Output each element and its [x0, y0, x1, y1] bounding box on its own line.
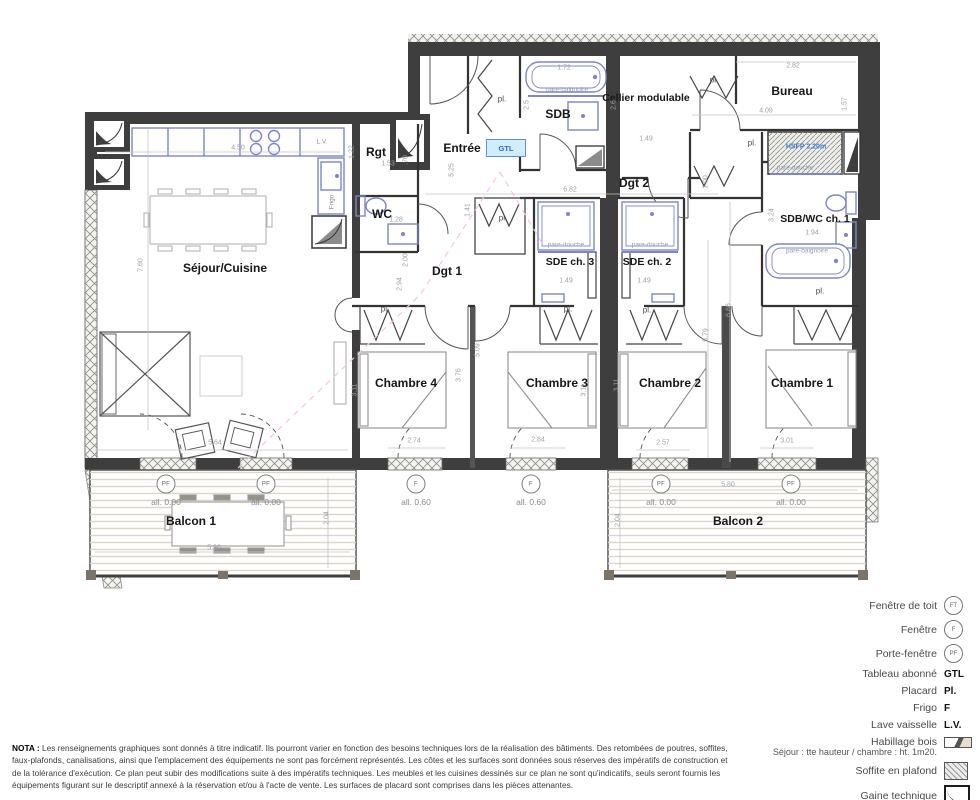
dim-dgt1-h2: 2.94 — [397, 277, 404, 291]
dim-sejour-h: 7.60 — [138, 258, 145, 272]
nota-disclaimer: NOTA : Les renseignements graphiques son… — [12, 742, 728, 792]
pl-symbol: Pl. — [944, 686, 956, 697]
placard-label: pl. — [499, 214, 507, 223]
placard-label: pl. — [710, 76, 718, 85]
nota-text: Les renseignements graphiques sont donné… — [12, 743, 728, 790]
dim-balcon1-h: 2.04 — [324, 511, 331, 525]
room-label-sejour: Séjour/Cuisine — [183, 261, 267, 275]
f-symbol: F — [529, 481, 533, 487]
legend-label: Gaine technique — [861, 790, 937, 800]
hsfp-label: HSFP 2.20m — [786, 144, 826, 151]
wood-swatch-icon — [944, 737, 972, 748]
legend-row-tableau-abonne: Tableau abonné GTL — [644, 668, 974, 680]
dim-ch3-side: 3.11 — [581, 383, 588, 396]
dim-entree-h: 5.25 — [449, 163, 456, 177]
pf-symbol: PF — [262, 481, 270, 487]
pare-baignoire-label: pare-baignoire — [546, 87, 588, 94]
balcony-door-swings — [140, 414, 816, 458]
porte-fenetre-marker: PF — [157, 475, 176, 494]
dim-bureau-w-bot: 4.09 — [759, 108, 773, 115]
allowance-label: all. 0.00 — [251, 497, 281, 507]
pare-douche-label: pare-douche — [632, 242, 669, 249]
dim-sde3-w: 1.49 — [559, 278, 573, 285]
legend-label: Fenêtre — [901, 624, 937, 636]
gtl-label: GTL — [499, 144, 514, 153]
dim-ch3-w: 2.84 — [531, 437, 545, 444]
legend-label: Fenêtre de toit — [869, 600, 937, 612]
lv-symbol: L.V. — [944, 720, 961, 731]
ft-marker-icon: FT — [944, 596, 963, 615]
pare-baignoire-label: pare-baignoire — [786, 248, 828, 255]
floor-plan-drawing — [0, 0, 980, 595]
pf-symbol: PF — [657, 481, 665, 487]
room-label-sde3: SDE ch. 3 — [546, 256, 594, 268]
f-symbol: F — [414, 481, 418, 487]
placard-label: pl. — [564, 305, 572, 314]
room-label-dgt1: Dgt 1 — [432, 264, 462, 278]
placard-label: pl. — [748, 139, 756, 148]
room-label-ch2: Chambre 2 — [639, 376, 701, 390]
dim-balcon2-w: 5.80 — [721, 482, 735, 489]
allowance-label: all. 0.00 — [776, 497, 806, 507]
gtl-box: GTL — [486, 139, 526, 157]
left-hatch-wall — [85, 190, 97, 468]
room-label-sdbwc1: SDB/WC ch. 1 — [780, 213, 849, 225]
dim-sde2-w: 1.49 — [637, 278, 651, 285]
dim-bureau-h: 1.57 — [842, 97, 849, 111]
room-label-ch1: Chambre 1 — [771, 376, 833, 390]
dim-bureau-w-top: 2.82 — [786, 63, 800, 70]
floor-plan-page: Séjour/Cuisine Rgt WC Entrée SDB Cellier… — [0, 0, 980, 800]
f-marker-icon: F — [944, 620, 963, 639]
legend-row-porte-fenetre: Porte-fenêtre PF — [644, 644, 974, 663]
pf-symbol: PF — [787, 481, 795, 487]
sofa — [100, 332, 190, 416]
dim-ch4-side: 3.11 — [352, 383, 359, 396]
allowance-label: all. 0.60 — [516, 497, 546, 507]
porte-fenetre-marker: PF — [782, 475, 801, 494]
legend-row-lave-vaisselle: Lave vaisselle L.V. — [644, 719, 974, 731]
dim-cellier-h: 2.6 — [611, 100, 618, 110]
porte-fenetre-marker: PF — [652, 475, 671, 494]
room-label-ch3: Chambre 3 — [526, 376, 588, 390]
room-label-balcon1: Balcon 1 — [166, 514, 216, 528]
dim-cellier-w: 1.49 — [639, 136, 653, 143]
room-label-sdb: SDB — [545, 107, 570, 121]
dim-rgt-gap: .70 — [403, 155, 410, 165]
placard-label: pl. — [816, 287, 824, 296]
dim-kitchen-w: 4.50 — [231, 145, 245, 152]
legend-label: Porte-fenêtre — [876, 648, 937, 660]
frigo-symbol: F — [944, 703, 950, 714]
dim-ch2-side: 3.11 — [614, 378, 621, 391]
placard-label: pl. — [498, 95, 506, 104]
rug — [200, 356, 242, 396]
dim-sdb-tub: 1.72 — [557, 65, 571, 72]
dim-wc-h: 1.41 — [465, 203, 472, 217]
placard-label: pl. — [381, 305, 389, 314]
legend-label: Frigo — [913, 702, 937, 714]
gtl-symbol: GTL — [944, 669, 964, 680]
dim-dgt1-h1: 2.00 — [403, 253, 410, 267]
pf-marker-icon: PF — [944, 644, 963, 663]
room-label-bureau: Bureau — [771, 84, 812, 98]
dim-dgt2-e: 1.00 — [703, 175, 710, 189]
legend-label: Placard — [901, 685, 937, 697]
allowance-label: all. 0.00 — [151, 497, 181, 507]
room-label-balcon2: Balcon 2 — [713, 514, 763, 528]
legend-row-frigo: Frigo F — [644, 702, 974, 714]
frigo-label: Frigo — [329, 195, 336, 210]
room-label-dgt2: Dgt 2 — [619, 176, 649, 190]
dim-ch12-h2: 6.86 — [726, 303, 733, 317]
porte-fenetre-marker: PF — [257, 475, 276, 494]
room-label-entree: Entrée — [443, 141, 480, 155]
pare-douche-label: pare-douche — [777, 165, 814, 172]
allowance-label: all. 0.60 — [401, 497, 431, 507]
dim-sdbwc-h: 3.24 — [769, 208, 776, 222]
rgt-gaine-box — [390, 114, 430, 170]
room-label-sde2: SDE ch. 2 — [623, 256, 671, 268]
dim-ch1-w: 3.01 — [780, 438, 794, 445]
room-label-rgt: Rgt — [366, 145, 386, 159]
placard-label: pl. — [643, 306, 651, 315]
pf-symbol: PF — [162, 481, 170, 487]
sideboard — [334, 342, 346, 404]
dim-ch4-w: 2.74 — [407, 438, 421, 445]
dim-balcon2-h: 2.04 — [615, 513, 622, 527]
exterior-walls — [85, 34, 880, 470]
dim-rgt-h: 1.22 — [349, 145, 356, 159]
dining-table — [144, 189, 272, 251]
legend-row-fenetre-toit: Fenêtre de toit FT — [644, 596, 974, 615]
legend-label: Lave vaisselle — [871, 719, 937, 731]
fenetre-marker: F — [522, 475, 541, 494]
allowance-label: all. 0.00 — [646, 497, 676, 507]
dim-ch4-h: 3.76 — [456, 368, 463, 382]
lave-vaisselle-label: L.V. — [317, 139, 328, 146]
sdb-gaine — [576, 146, 604, 168]
legend-row-placard: Placard Pl. — [644, 685, 974, 697]
dim-dgt2-w: 6.82 — [563, 187, 577, 194]
room-label-ch4: Chambre 4 — [375, 376, 437, 390]
dim-sdb-h: 2.5 — [524, 100, 531, 110]
kitchen-gaine — [312, 216, 346, 248]
dim-ch12-h1: 5.79 — [703, 328, 710, 342]
dim-balcon1-w: 5.90 — [207, 545, 221, 552]
dim-sejour-w: 5.64 — [208, 440, 222, 447]
legend-label: Soffite en plafond — [855, 765, 937, 777]
fenetre-marker: F — [407, 475, 426, 494]
dim-sdbwc-w: 1.94 — [805, 230, 819, 237]
dim-wc-w: 1.28 — [389, 217, 403, 224]
gaine-swatch-icon — [944, 785, 970, 800]
nota-title: NOTA : — [12, 743, 40, 753]
legend-row-fenetre: Fenêtre F — [644, 620, 974, 639]
dim-rgt-w: 1.53 — [381, 161, 395, 168]
dim-ch2-w: 2.57 — [656, 440, 670, 447]
soffite-swatch-icon — [944, 762, 968, 780]
legend-label: Tableau abonné — [862, 668, 937, 680]
dim-corridor-h: 5.09 — [475, 343, 482, 357]
pare-douche-label: pare-douche — [548, 242, 585, 249]
